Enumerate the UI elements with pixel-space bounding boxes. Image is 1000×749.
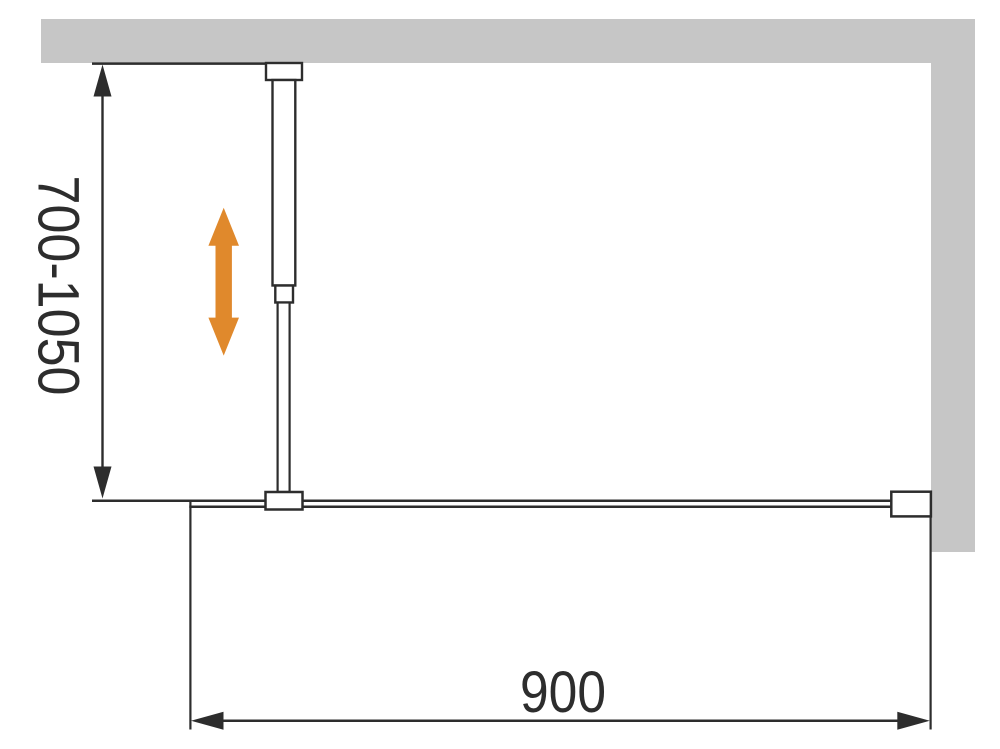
svg-text:900: 900 <box>520 660 606 725</box>
svg-text:700-1050: 700-1050 <box>26 176 91 396</box>
